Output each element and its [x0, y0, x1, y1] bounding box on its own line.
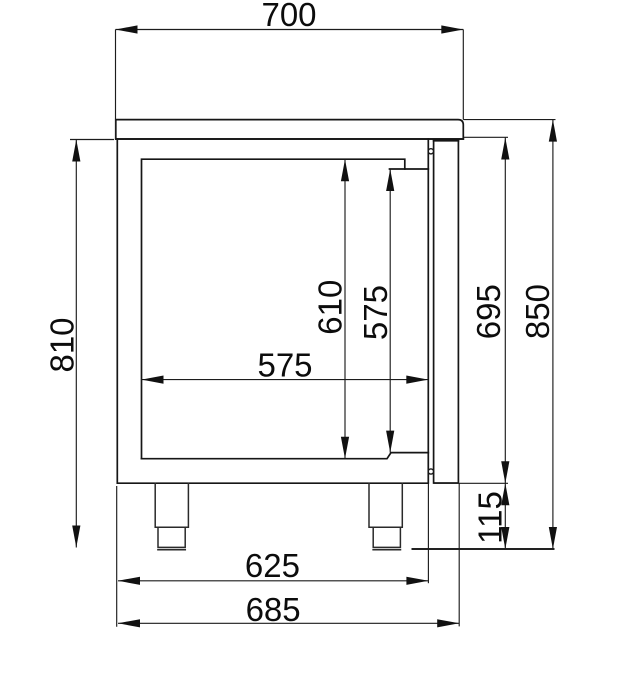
svg-text:115: 115	[472, 491, 509, 544]
svg-text:850: 850	[519, 284, 556, 339]
svg-text:625: 625	[245, 547, 300, 584]
svg-text:700: 700	[261, 0, 316, 33]
svg-text:810: 810	[43, 317, 80, 372]
svg-text:695: 695	[470, 284, 507, 339]
svg-text:685: 685	[246, 591, 301, 628]
svg-text:575: 575	[257, 346, 312, 383]
svg-text:575: 575	[357, 285, 394, 340]
svg-text:610: 610	[312, 280, 349, 335]
